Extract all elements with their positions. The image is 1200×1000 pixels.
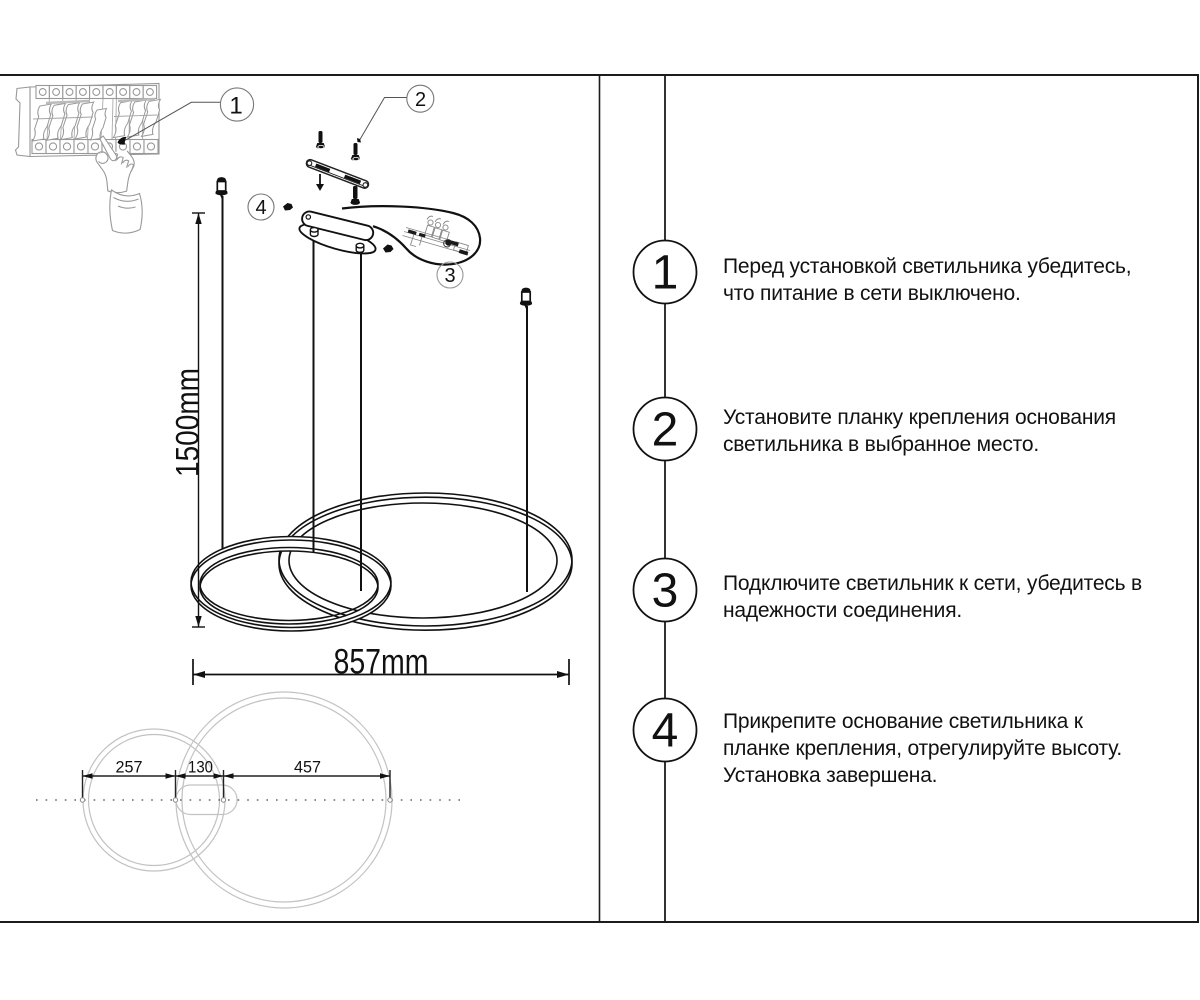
svg-text:257: 257: [116, 759, 143, 777]
svg-text:3: 3: [444, 265, 455, 287]
svg-text:планке крепления, отрегулируйт: планке крепления, отрегулируйте высоту.: [723, 737, 1122, 760]
svg-text:130: 130: [188, 759, 213, 777]
svg-text:3: 3: [652, 565, 679, 618]
svg-text:Подключите светильник к сети,: Подключите светильник к сети, убедитесь …: [723, 572, 1142, 595]
svg-text:Установка завершена.: Установка завершена.: [723, 764, 937, 787]
svg-text:светильника в выбранное место.: светильника в выбранное место.: [723, 433, 1039, 456]
svg-text:1: 1: [652, 247, 679, 300]
svg-text:Перед установкой светильника у: Перед установкой светильника убедитесь,: [723, 255, 1131, 278]
svg-text:4: 4: [255, 197, 266, 219]
svg-text:2: 2: [415, 89, 426, 111]
svg-text:4: 4: [652, 705, 679, 758]
svg-text:457: 457: [294, 759, 321, 777]
svg-text:2: 2: [652, 404, 679, 457]
svg-text:Установите планку крепления ос: Установите планку крепления основания: [723, 406, 1116, 429]
svg-text:1500mm: 1500mm: [170, 368, 206, 477]
svg-text:1: 1: [229, 93, 242, 120]
svg-text:857mm: 857mm: [334, 643, 429, 682]
svg-text:что питание в сети выключено.: что питание в сети выключено.: [723, 282, 1021, 305]
svg-text:надежности соединения.: надежности соединения.: [723, 599, 962, 622]
svg-text:Прикрепите основание светильни: Прикрепите основание светильника к: [723, 710, 1084, 733]
